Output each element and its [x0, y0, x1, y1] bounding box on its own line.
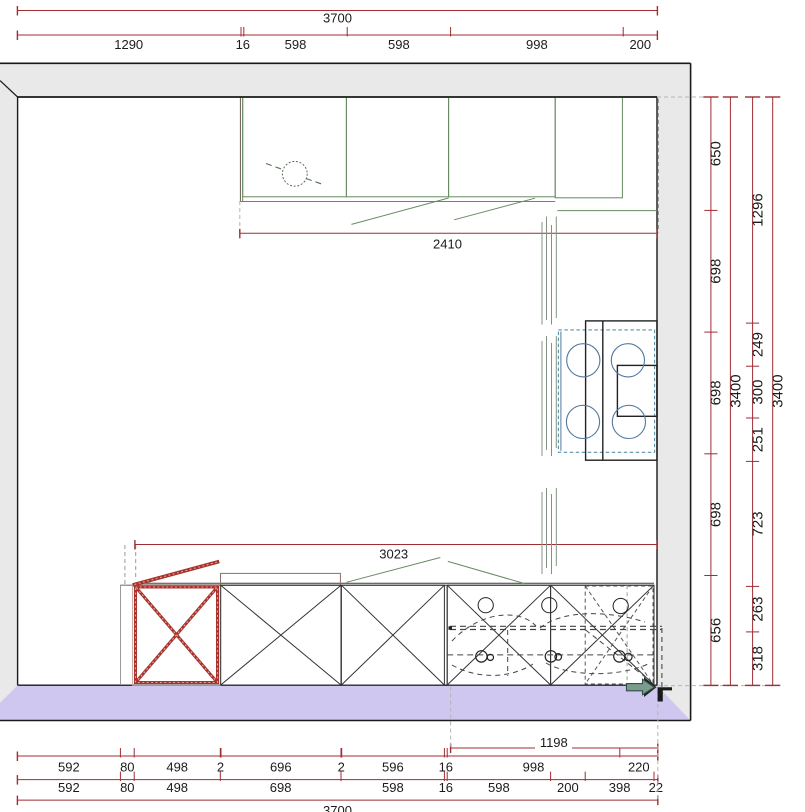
svg-text:498: 498 [166, 780, 188, 795]
svg-text:596: 596 [382, 760, 404, 775]
svg-text:16: 16 [236, 37, 250, 52]
svg-text:251: 251 [750, 427, 767, 452]
svg-text:998: 998 [526, 37, 548, 52]
svg-text:698: 698 [708, 502, 725, 527]
svg-text:398: 398 [609, 780, 631, 795]
svg-text:598: 598 [382, 780, 404, 795]
svg-text:3400: 3400 [770, 374, 787, 407]
svg-text:16: 16 [439, 760, 453, 775]
svg-text:3700: 3700 [323, 803, 352, 812]
svg-text:200: 200 [629, 37, 651, 52]
svg-text:592: 592 [58, 780, 80, 795]
svg-text:698: 698 [708, 380, 725, 405]
svg-text:3023: 3023 [379, 546, 408, 561]
svg-text:1198: 1198 [540, 735, 568, 750]
svg-text:598: 598 [488, 780, 510, 795]
svg-text:220: 220 [628, 760, 650, 775]
svg-text:318: 318 [750, 646, 767, 671]
svg-text:696: 696 [270, 760, 292, 775]
svg-text:3700: 3700 [323, 10, 352, 25]
svg-text:656: 656 [708, 618, 725, 643]
svg-text:80: 80 [120, 780, 134, 795]
svg-text:200: 200 [557, 780, 579, 795]
svg-text:1296: 1296 [750, 193, 767, 226]
svg-text:249: 249 [750, 332, 767, 357]
svg-text:1290: 1290 [114, 37, 143, 52]
svg-text:498: 498 [166, 760, 188, 775]
svg-text:16: 16 [439, 780, 453, 795]
svg-text:698: 698 [270, 780, 292, 795]
svg-text:698: 698 [708, 259, 725, 284]
svg-text:598: 598 [388, 37, 410, 52]
svg-text:592: 592 [58, 760, 80, 775]
svg-text:723: 723 [750, 511, 767, 536]
svg-text:998: 998 [523, 760, 545, 775]
svg-text:3400: 3400 [727, 374, 744, 407]
svg-text:2410: 2410 [433, 236, 462, 251]
svg-text:300: 300 [750, 380, 767, 405]
svg-text:80: 80 [120, 760, 134, 775]
svg-text:22: 22 [649, 780, 663, 795]
svg-text:263: 263 [750, 597, 767, 622]
svg-text:650: 650 [708, 141, 725, 166]
svg-text:598: 598 [285, 37, 307, 52]
